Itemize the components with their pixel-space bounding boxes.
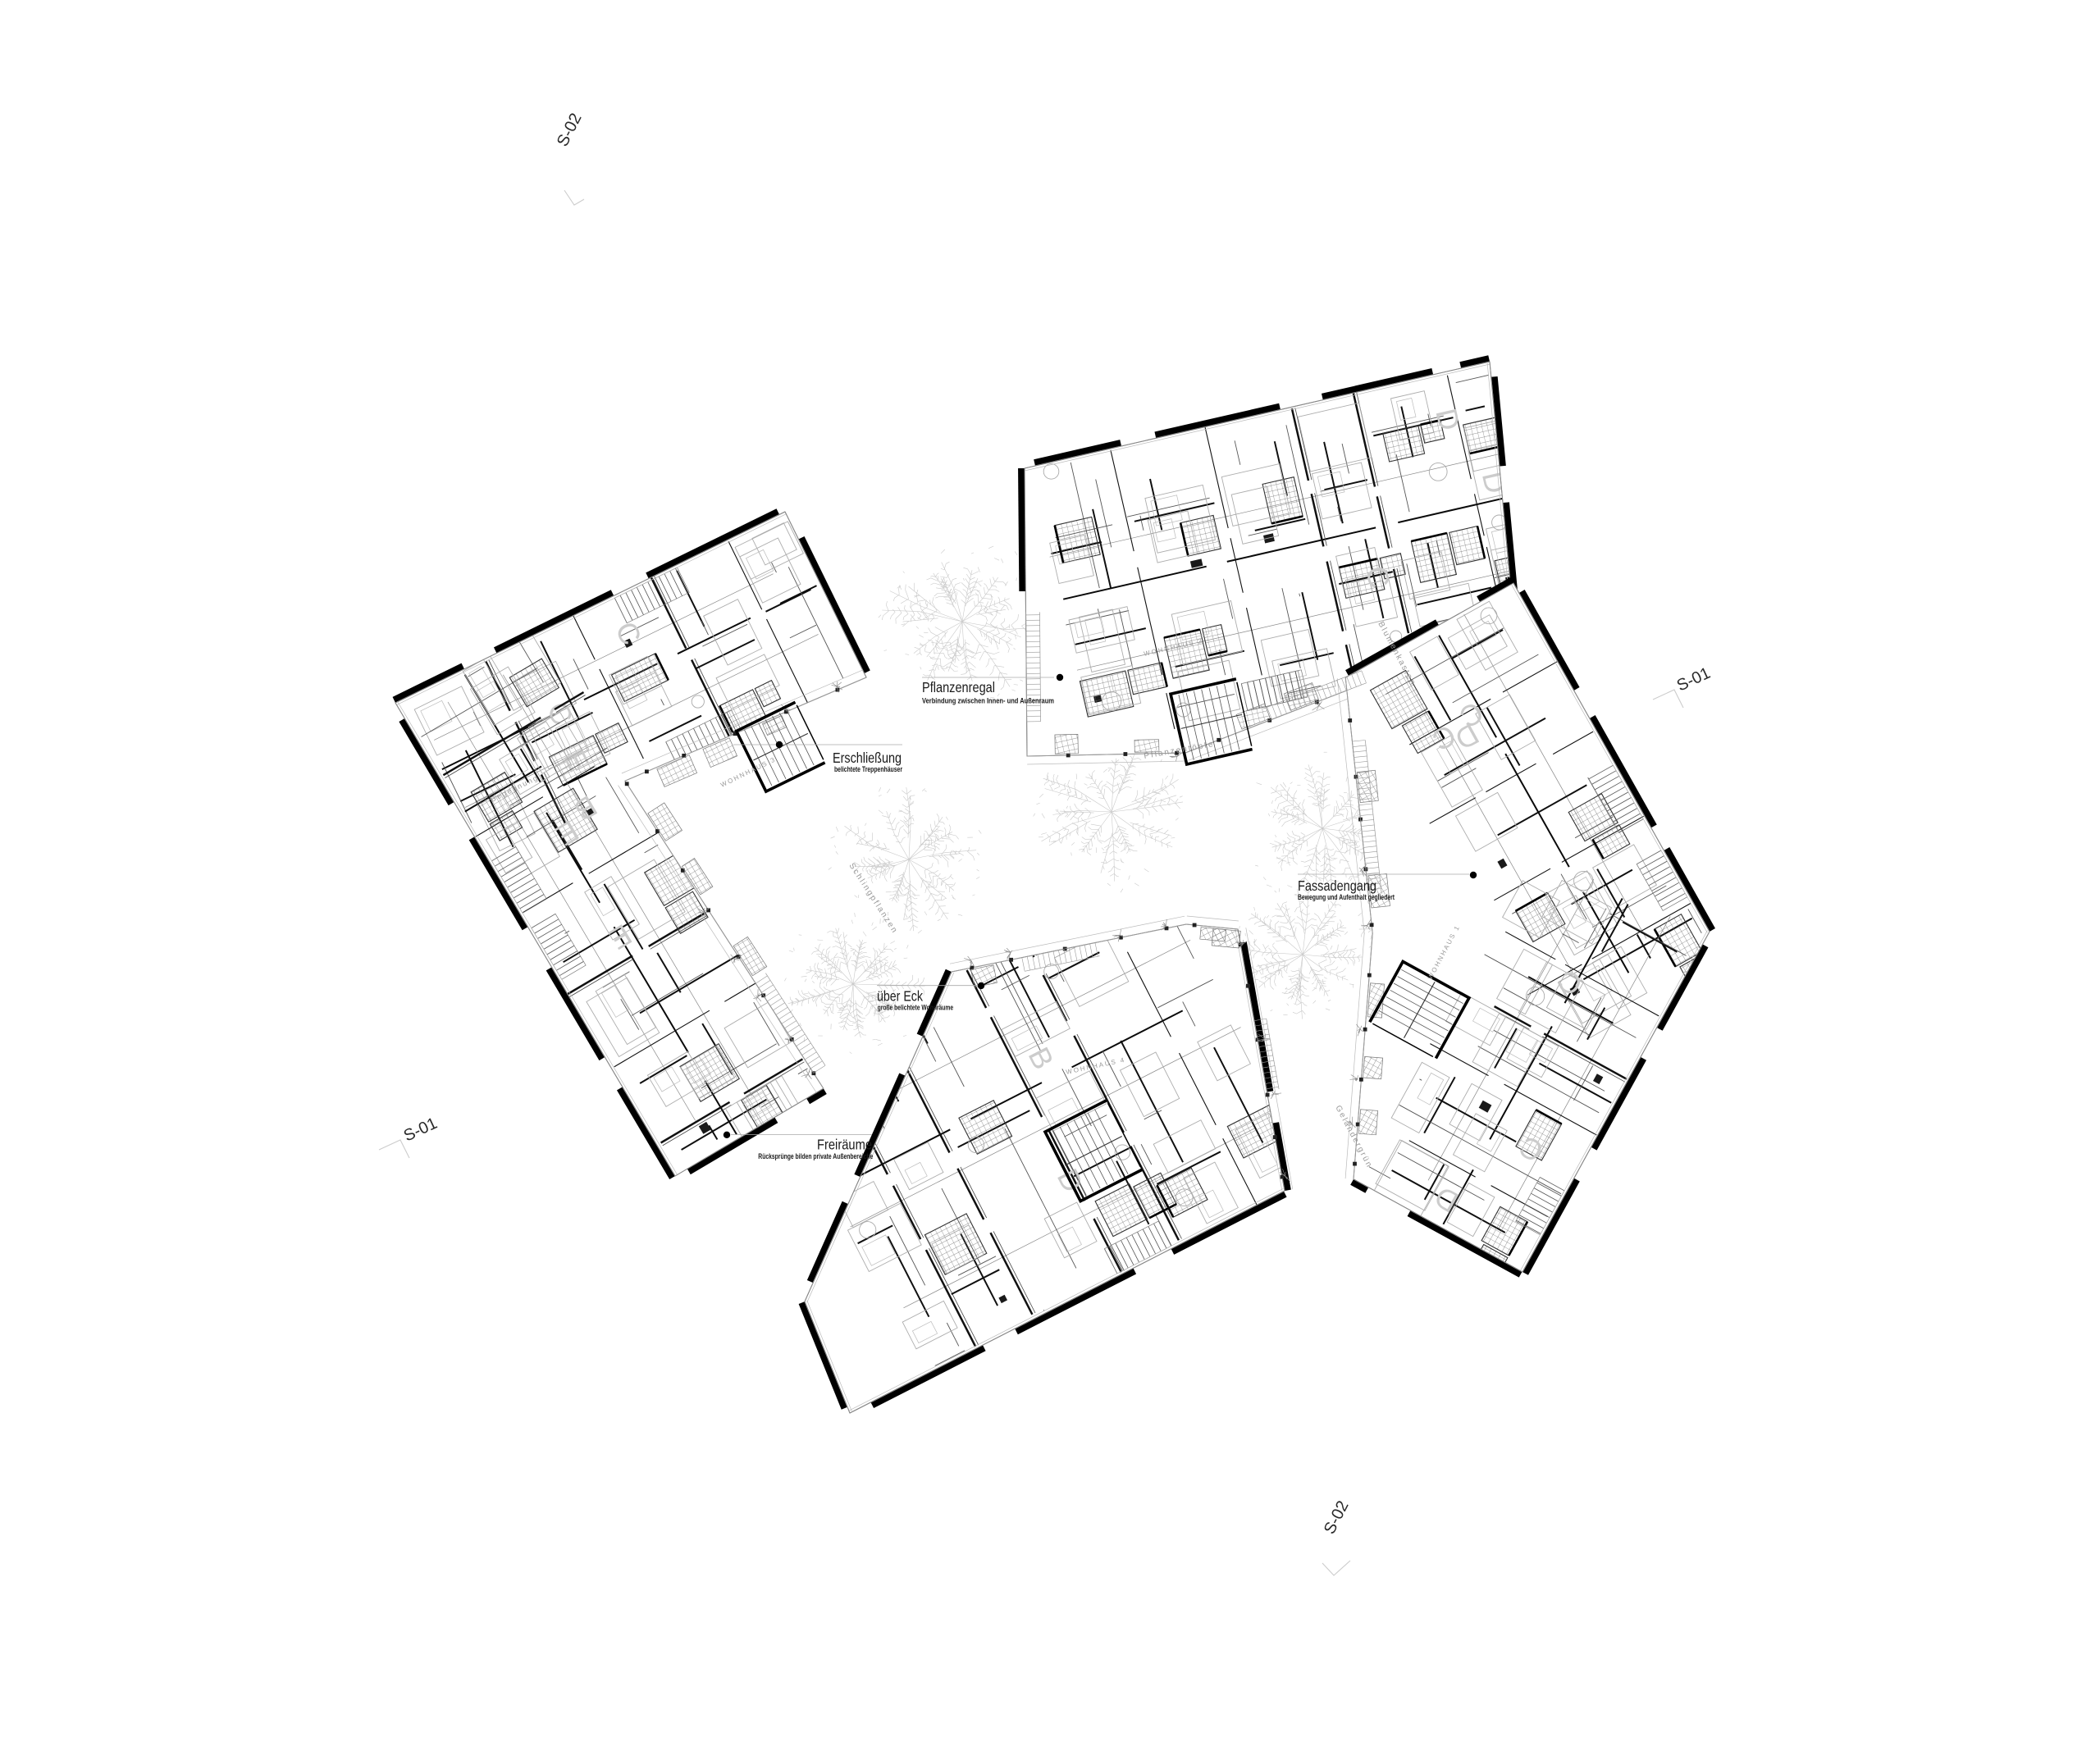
svg-text:Erschließung: Erschließung bbox=[833, 750, 902, 766]
svg-text:Verbindung zwischen Innen- und: Verbindung zwischen Innen- und Außenraum bbox=[922, 697, 1054, 706]
svg-text:Rücksprünge bilden private Auß: Rücksprünge bilden private Außenbereiche bbox=[758, 1152, 873, 1161]
svg-text:über Eck: über Eck bbox=[877, 988, 923, 1005]
svg-text:belichtete Treppenhäuser: belichtete Treppenhäuser bbox=[834, 765, 902, 774]
svg-text:große belichtete Wohnräume: große belichtete Wohnräume bbox=[878, 1003, 954, 1012]
svg-text:Fassadengang: Fassadengang bbox=[1298, 877, 1376, 894]
svg-text:Pflanzenregal: Pflanzenregal bbox=[922, 679, 995, 695]
svg-text:Freiräume: Freiräume bbox=[817, 1137, 872, 1153]
svg-text:Bewegung und Aufenthalt geglie: Bewegung und Aufenthalt gegliedert bbox=[1298, 893, 1395, 902]
